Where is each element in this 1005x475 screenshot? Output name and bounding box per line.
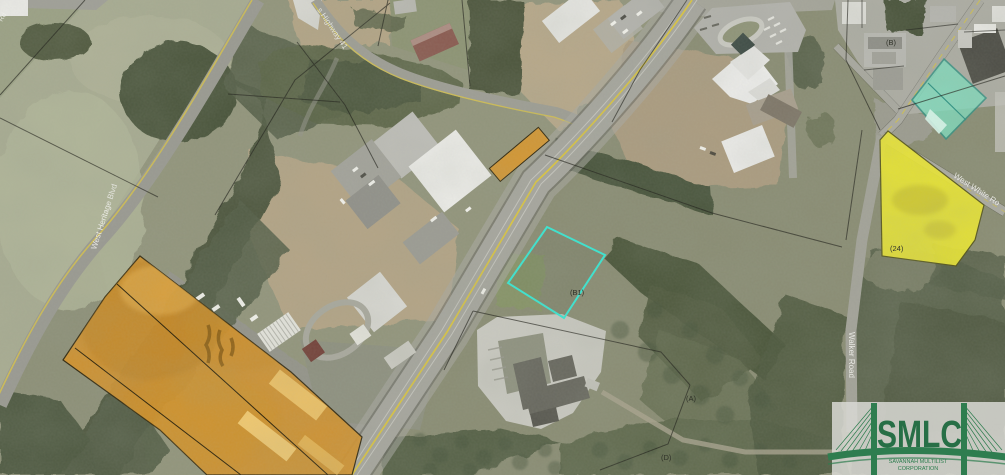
svg-text:SAVANNAH MULTILIST: SAVANNAH MULTILIST — [889, 459, 948, 465]
svg-text:CORPORATION: CORPORATION — [898, 466, 939, 472]
svg-text:SMLC: SMLC — [877, 414, 962, 456]
